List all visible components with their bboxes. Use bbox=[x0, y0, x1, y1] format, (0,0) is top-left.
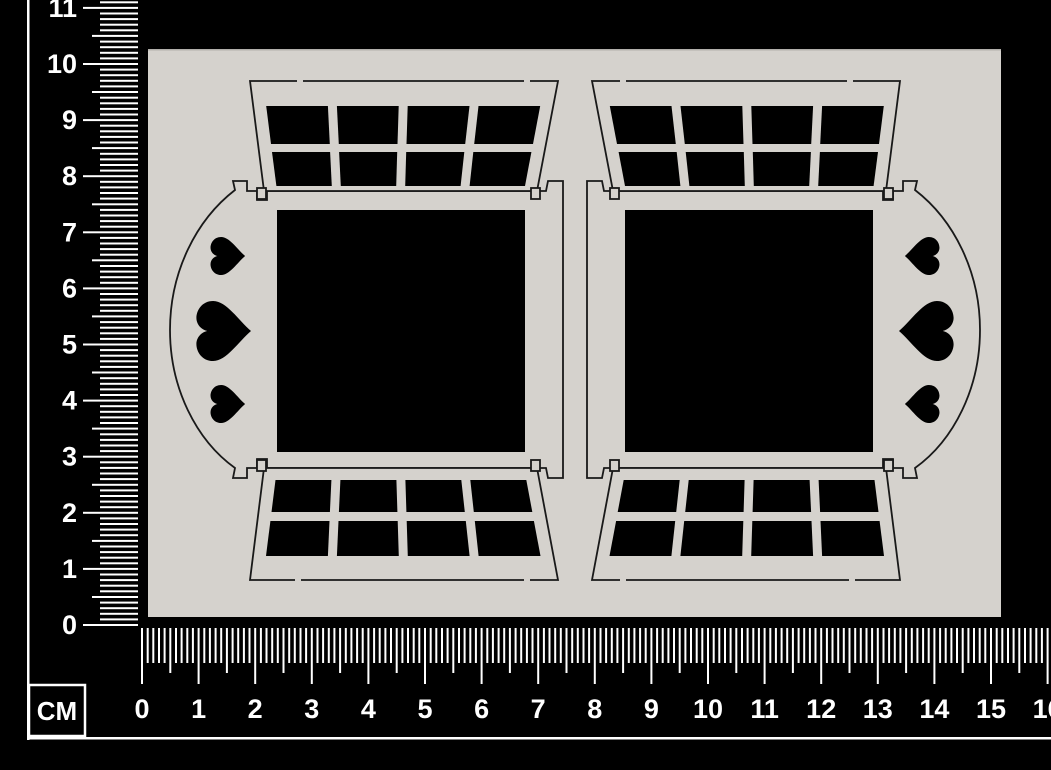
v-ruler-tick bbox=[100, 276, 138, 278]
h-ruler-tick bbox=[215, 628, 217, 663]
v-ruler-tick bbox=[100, 461, 138, 463]
h-ruler-tick bbox=[549, 628, 551, 663]
h-ruler-tick bbox=[928, 628, 930, 663]
h-ruler-tick bbox=[469, 628, 471, 663]
h-ruler-tick bbox=[741, 628, 743, 663]
h-ruler-label: 9 bbox=[644, 694, 659, 724]
h-ruler-tick bbox=[707, 628, 709, 684]
h-ruler-tick bbox=[605, 628, 607, 663]
v-ruler-tick bbox=[100, 551, 138, 553]
v-ruler-tick bbox=[100, 562, 138, 564]
h-ruler-tick bbox=[843, 628, 845, 663]
h-ruler-tick bbox=[832, 628, 834, 663]
v-ruler-tick bbox=[92, 372, 138, 374]
panel-foot bbox=[531, 188, 540, 199]
h-ruler-tick bbox=[532, 628, 534, 663]
lattice-pane-cutout bbox=[407, 106, 470, 144]
h-ruler-tick bbox=[158, 628, 160, 663]
h-ruler-tick bbox=[396, 628, 398, 673]
panel-foot bbox=[257, 460, 266, 471]
h-ruler-tick bbox=[373, 628, 375, 663]
h-ruler-tick bbox=[526, 628, 528, 663]
h-ruler-tick bbox=[724, 628, 726, 663]
v-ruler-tick bbox=[100, 293, 138, 295]
h-ruler-label: 1 bbox=[191, 694, 206, 724]
v-ruler-tick bbox=[100, 114, 138, 116]
v-ruler-tick bbox=[100, 321, 138, 323]
h-ruler-tick bbox=[673, 628, 675, 663]
cut-break bbox=[297, 77, 303, 85]
h-ruler-tick bbox=[1035, 628, 1037, 663]
h-ruler-tick bbox=[407, 628, 409, 663]
v-ruler-tick bbox=[100, 41, 138, 43]
v-ruler-tick bbox=[100, 327, 138, 329]
h-ruler-label: 8 bbox=[587, 694, 602, 724]
h-ruler-tick bbox=[979, 628, 981, 663]
h-ruler-tick bbox=[283, 628, 285, 673]
h-ruler-tick bbox=[1030, 628, 1032, 663]
h-ruler-tick bbox=[718, 628, 720, 663]
v-ruler-tick bbox=[100, 310, 138, 312]
h-ruler-tick bbox=[899, 628, 901, 663]
h-ruler-tick bbox=[362, 628, 364, 663]
h-ruler-tick bbox=[883, 628, 885, 663]
h-ruler-tick bbox=[956, 628, 958, 663]
h-ruler-tick bbox=[515, 628, 517, 663]
h-ruler-tick bbox=[294, 628, 296, 663]
h-ruler-tick bbox=[611, 628, 613, 663]
v-ruler-tick bbox=[100, 304, 138, 306]
h-ruler-tick bbox=[186, 628, 188, 663]
cut-break bbox=[524, 576, 530, 584]
v-ruler-tick bbox=[100, 181, 138, 183]
v-ruler-tick bbox=[92, 35, 138, 37]
v-ruler-tick bbox=[100, 192, 138, 194]
h-ruler-tick bbox=[379, 628, 381, 663]
h-ruler-tick bbox=[933, 628, 935, 684]
v-ruler-label: 4 bbox=[62, 386, 77, 416]
v-ruler-tick bbox=[100, 388, 138, 390]
panel-foot bbox=[531, 460, 540, 471]
v-ruler-tick bbox=[83, 119, 138, 121]
h-ruler-tick bbox=[696, 628, 698, 663]
v-ruler-tick bbox=[100, 360, 138, 362]
h-ruler-tick bbox=[701, 628, 703, 663]
v-ruler-tick bbox=[100, 394, 138, 396]
v-ruler-tick bbox=[92, 484, 138, 486]
v-ruler-tick bbox=[100, 153, 138, 155]
v-ruler-tick bbox=[83, 63, 138, 65]
h-ruler-tick bbox=[305, 628, 307, 663]
v-ruler-tick bbox=[100, 243, 138, 245]
h-ruler-tick bbox=[260, 628, 262, 663]
lattice-pane-cutout bbox=[405, 152, 464, 186]
h-ruler-tick bbox=[622, 628, 624, 673]
h-ruler-tick bbox=[871, 628, 873, 663]
h-ruler-tick bbox=[639, 628, 641, 663]
h-ruler-tick bbox=[226, 628, 228, 673]
panel-foot bbox=[257, 188, 266, 199]
h-ruler-label: 7 bbox=[531, 694, 546, 724]
h-ruler-tick bbox=[249, 628, 251, 663]
v-ruler-tick bbox=[100, 366, 138, 368]
h-ruler-tick bbox=[798, 628, 800, 663]
h-ruler-tick bbox=[667, 628, 669, 663]
v-ruler-tick bbox=[92, 428, 138, 430]
v-ruler-tick bbox=[100, 125, 138, 127]
h-ruler-tick bbox=[418, 628, 420, 663]
h-ruler-tick bbox=[271, 628, 273, 663]
h-ruler-tick bbox=[424, 628, 426, 684]
v-ruler-tick bbox=[92, 203, 138, 205]
h-ruler-tick bbox=[1041, 628, 1043, 663]
h-ruler-label: 13 bbox=[863, 694, 893, 724]
h-ruler-tick bbox=[945, 628, 947, 663]
v-ruler-tick bbox=[100, 158, 138, 160]
h-ruler-tick bbox=[356, 628, 358, 663]
v-ruler-tick bbox=[83, 175, 138, 177]
v-ruler-tick bbox=[100, 1, 138, 3]
h-ruler-tick bbox=[628, 628, 630, 663]
h-ruler-tick bbox=[441, 628, 443, 663]
h-ruler-tick bbox=[826, 628, 828, 663]
v-ruler-label: 2 bbox=[62, 498, 77, 528]
v-ruler-tick bbox=[83, 456, 138, 458]
v-ruler-tick bbox=[92, 315, 138, 317]
h-ruler-tick bbox=[803, 628, 805, 663]
v-ruler-tick bbox=[100, 215, 138, 217]
v-ruler-tick bbox=[100, 29, 138, 31]
v-ruler-tick bbox=[100, 226, 138, 228]
h-ruler-tick bbox=[577, 628, 579, 663]
cut-break bbox=[524, 77, 530, 85]
h-ruler-tick bbox=[430, 628, 432, 663]
h-ruler-tick bbox=[656, 628, 658, 663]
h-ruler-tick bbox=[781, 628, 783, 663]
h-ruler-label: 14 bbox=[919, 694, 949, 724]
v-ruler-tick bbox=[100, 52, 138, 54]
h-ruler-tick bbox=[520, 628, 522, 663]
v-ruler-tick bbox=[100, 506, 138, 508]
v-ruler-tick bbox=[100, 517, 138, 519]
h-ruler-tick bbox=[317, 628, 319, 663]
v-ruler-tick bbox=[100, 74, 138, 76]
h-ruler-tick bbox=[243, 628, 245, 663]
v-ruler-tick bbox=[100, 209, 138, 211]
h-ruler-tick bbox=[164, 628, 166, 663]
h-ruler-label: 6 bbox=[474, 694, 489, 724]
h-ruler-tick bbox=[237, 628, 239, 663]
v-ruler-tick bbox=[100, 579, 138, 581]
h-ruler-tick bbox=[939, 628, 941, 663]
h-ruler-tick bbox=[786, 628, 788, 663]
v-ruler-tick bbox=[100, 445, 138, 447]
v-ruler-tick bbox=[100, 57, 138, 59]
h-ruler-tick bbox=[322, 628, 324, 663]
v-ruler-tick bbox=[100, 613, 138, 615]
h-ruler-label: 4 bbox=[361, 694, 376, 724]
h-ruler-tick bbox=[645, 628, 647, 663]
h-ruler-tick bbox=[181, 628, 183, 663]
h-ruler-tick bbox=[894, 628, 896, 663]
h-ruler-tick bbox=[1001, 628, 1003, 663]
lattice-pane-cutout bbox=[266, 106, 330, 144]
h-ruler-tick bbox=[650, 628, 652, 684]
lattice-pane-cutout bbox=[337, 106, 399, 144]
cm-unit-label: CM bbox=[37, 696, 77, 726]
v-ruler-tick bbox=[92, 91, 138, 93]
h-ruler-label: 15 bbox=[976, 694, 1006, 724]
h-ruler-tick bbox=[254, 628, 256, 684]
h-ruler-tick bbox=[543, 628, 545, 663]
v-ruler-tick bbox=[100, 501, 138, 503]
v-ruler-tick bbox=[100, 85, 138, 87]
h-ruler-tick bbox=[345, 628, 347, 663]
h-ruler-tick bbox=[232, 628, 234, 663]
h-ruler-tick bbox=[464, 628, 466, 663]
h-ruler-tick bbox=[730, 628, 732, 663]
window-opening-cutout bbox=[277, 210, 525, 452]
v-ruler-tick bbox=[100, 557, 138, 559]
v-ruler-tick bbox=[92, 147, 138, 149]
v-ruler-label: 8 bbox=[62, 161, 77, 191]
v-ruler-tick bbox=[100, 574, 138, 576]
h-ruler-tick bbox=[662, 628, 664, 663]
h-ruler-label: 0 bbox=[134, 694, 149, 724]
h-ruler-label: 12 bbox=[806, 694, 836, 724]
h-ruler-tick bbox=[916, 628, 918, 663]
h-ruler-tick bbox=[350, 628, 352, 663]
lattice-pane-cutout bbox=[337, 521, 399, 556]
v-ruler-tick bbox=[100, 265, 138, 267]
lattice-pane-cutout bbox=[470, 480, 532, 512]
ruler-left-border-line bbox=[27, 0, 30, 740]
v-ruler-tick bbox=[83, 231, 138, 233]
h-ruler-tick bbox=[198, 628, 200, 684]
h-ruler-tick bbox=[169, 628, 171, 673]
v-ruler-tick bbox=[100, 24, 138, 26]
v-ruler-tick bbox=[100, 102, 138, 104]
h-ruler-tick bbox=[458, 628, 460, 663]
h-ruler-tick bbox=[854, 628, 856, 663]
v-ruler-label: 0 bbox=[62, 610, 77, 640]
v-ruler-tick bbox=[100, 136, 138, 138]
lattice-pane-cutout bbox=[470, 152, 532, 186]
v-ruler-tick bbox=[83, 624, 138, 626]
v-ruler-tick bbox=[100, 338, 138, 340]
v-ruler-tick bbox=[83, 344, 138, 346]
h-ruler-tick bbox=[860, 628, 862, 663]
v-ruler-tick bbox=[100, 489, 138, 491]
h-ruler-label: 11 bbox=[750, 694, 779, 724]
v-ruler-tick bbox=[100, 355, 138, 357]
h-ruler-tick bbox=[1007, 628, 1009, 663]
v-ruler-tick bbox=[100, 422, 138, 424]
v-ruler-tick bbox=[100, 411, 138, 413]
h-ruler-tick bbox=[503, 628, 505, 663]
h-ruler-tick bbox=[328, 628, 330, 663]
lattice-pane-cutout bbox=[266, 521, 330, 556]
h-ruler-label: 16 bbox=[1033, 694, 1051, 724]
h-ruler-tick bbox=[837, 628, 839, 663]
lattice-pane-cutout bbox=[272, 480, 332, 512]
v-ruler-tick bbox=[100, 377, 138, 379]
lattice-pane-cutout bbox=[272, 152, 332, 186]
h-ruler-tick bbox=[486, 628, 488, 663]
v-ruler-label: 6 bbox=[62, 273, 77, 303]
v-ruler-label: 1 bbox=[62, 554, 77, 584]
h-ruler-tick bbox=[571, 628, 573, 663]
h-ruler-tick bbox=[498, 628, 500, 663]
h-ruler-tick bbox=[1018, 628, 1020, 673]
h-ruler-tick bbox=[769, 628, 771, 663]
h-ruler-tick bbox=[560, 628, 562, 663]
h-ruler-tick bbox=[390, 628, 392, 663]
h-ruler-tick bbox=[266, 628, 268, 663]
h-ruler-tick bbox=[300, 628, 302, 663]
h-ruler-tick bbox=[220, 628, 222, 663]
h-ruler-tick bbox=[820, 628, 822, 684]
h-ruler-tick bbox=[1024, 628, 1026, 663]
h-ruler-tick bbox=[973, 628, 975, 663]
v-ruler-tick bbox=[100, 546, 138, 548]
lattice-pane-cutout bbox=[475, 521, 541, 556]
product-photo: 01234567891011 012345678910111213141516 … bbox=[0, 0, 1051, 770]
h-ruler-tick bbox=[775, 628, 777, 663]
h-ruler-tick bbox=[203, 628, 205, 663]
v-ruler-label: 5 bbox=[62, 330, 77, 360]
vertical-ruler: 01234567891011 bbox=[47, 0, 138, 640]
lattice-pane-cutout bbox=[474, 106, 540, 144]
h-ruler-tick bbox=[967, 628, 969, 663]
v-ruler-tick bbox=[100, 142, 138, 144]
h-ruler-tick bbox=[384, 628, 386, 663]
v-ruler-tick bbox=[100, 607, 138, 609]
top-lattice-panel bbox=[250, 81, 558, 199]
v-ruler-tick bbox=[100, 529, 138, 531]
photo-stage: 01234567891011 012345678910111213141516 … bbox=[0, 0, 1051, 770]
h-ruler-tick bbox=[566, 628, 568, 673]
h-ruler-tick bbox=[866, 628, 868, 663]
v-ruler-tick bbox=[100, 585, 138, 587]
v-ruler-tick bbox=[100, 416, 138, 418]
h-ruler-label: 2 bbox=[248, 694, 263, 724]
board-top-shadow bbox=[148, 49, 1001, 51]
h-ruler-tick bbox=[815, 628, 817, 663]
v-ruler-tick bbox=[100, 186, 138, 188]
v-ruler-tick bbox=[100, 332, 138, 334]
h-ruler-tick bbox=[735, 628, 737, 673]
v-ruler-tick bbox=[100, 534, 138, 536]
h-ruler-tick bbox=[950, 628, 952, 663]
v-ruler-label: 9 bbox=[62, 105, 77, 135]
h-ruler-tick bbox=[554, 628, 556, 663]
v-ruler-tick bbox=[100, 405, 138, 407]
h-ruler-tick bbox=[962, 628, 964, 673]
v-ruler-tick bbox=[100, 618, 138, 620]
h-ruler-tick bbox=[475, 628, 477, 663]
h-ruler-tick bbox=[600, 628, 602, 663]
v-ruler-tick bbox=[100, 495, 138, 497]
v-ruler-tick bbox=[83, 512, 138, 514]
h-ruler-tick bbox=[339, 628, 341, 673]
h-ruler-tick bbox=[1013, 628, 1015, 663]
v-ruler-tick bbox=[100, 13, 138, 15]
v-ruler-tick bbox=[100, 299, 138, 301]
v-ruler-tick bbox=[100, 69, 138, 71]
cut-break bbox=[295, 576, 301, 584]
v-ruler-tick bbox=[100, 523, 138, 525]
v-ruler-tick bbox=[100, 108, 138, 110]
v-ruler-tick bbox=[100, 164, 138, 166]
v-ruler-tick bbox=[100, 450, 138, 452]
h-ruler-tick bbox=[911, 628, 913, 663]
h-ruler-tick bbox=[141, 628, 143, 684]
lattice-pane-cutout bbox=[405, 480, 464, 512]
ruler-bottom-border-line bbox=[27, 737, 1051, 740]
h-ruler-label: 10 bbox=[693, 694, 723, 724]
h-ruler-tick bbox=[1047, 628, 1049, 684]
h-ruler-tick bbox=[905, 628, 907, 673]
v-ruler-tick bbox=[100, 282, 138, 284]
h-ruler-tick bbox=[152, 628, 154, 663]
h-ruler-tick bbox=[594, 628, 596, 684]
h-ruler-tick bbox=[877, 628, 879, 684]
v-ruler-tick bbox=[92, 596, 138, 598]
v-ruler-tick bbox=[100, 170, 138, 172]
v-ruler-tick bbox=[100, 602, 138, 604]
v-ruler-tick bbox=[100, 220, 138, 222]
h-ruler-tick bbox=[367, 628, 369, 684]
h-ruler-tick bbox=[492, 628, 494, 663]
v-ruler-tick bbox=[100, 97, 138, 99]
h-ruler-tick bbox=[333, 628, 335, 663]
v-ruler-tick bbox=[92, 540, 138, 542]
h-ruler-tick bbox=[452, 628, 454, 673]
h-ruler-tick bbox=[990, 628, 992, 684]
h-ruler-tick bbox=[713, 628, 715, 663]
v-ruler-tick bbox=[100, 80, 138, 82]
h-ruler-tick bbox=[175, 628, 177, 663]
v-ruler-tick bbox=[100, 254, 138, 256]
v-ruler-tick bbox=[100, 271, 138, 273]
h-ruler-tick bbox=[809, 628, 811, 663]
horizontal-ruler: 012345678910111213141516 bbox=[134, 628, 1051, 724]
h-ruler-label: 5 bbox=[417, 694, 432, 724]
h-ruler-tick bbox=[192, 628, 194, 663]
h-ruler-label: 3 bbox=[304, 694, 319, 724]
h-ruler-tick bbox=[752, 628, 754, 663]
h-ruler-tick bbox=[996, 628, 998, 663]
v-ruler-tick bbox=[100, 130, 138, 132]
h-ruler-tick bbox=[413, 628, 415, 663]
h-ruler-tick bbox=[684, 628, 686, 663]
v-ruler-tick bbox=[100, 46, 138, 48]
h-ruler-tick bbox=[435, 628, 437, 663]
v-ruler-tick bbox=[83, 7, 138, 9]
v-ruler-tick bbox=[83, 400, 138, 402]
v-ruler-tick bbox=[83, 287, 138, 289]
v-ruler-tick bbox=[100, 237, 138, 239]
h-ruler-tick bbox=[792, 628, 794, 673]
v-ruler-tick bbox=[100, 349, 138, 351]
v-ruler-tick bbox=[100, 478, 138, 480]
h-ruler-tick bbox=[922, 628, 924, 663]
h-ruler-tick bbox=[311, 628, 313, 684]
v-ruler-tick bbox=[100, 473, 138, 475]
h-ruler-tick bbox=[481, 628, 483, 684]
h-ruler-tick bbox=[209, 628, 211, 663]
